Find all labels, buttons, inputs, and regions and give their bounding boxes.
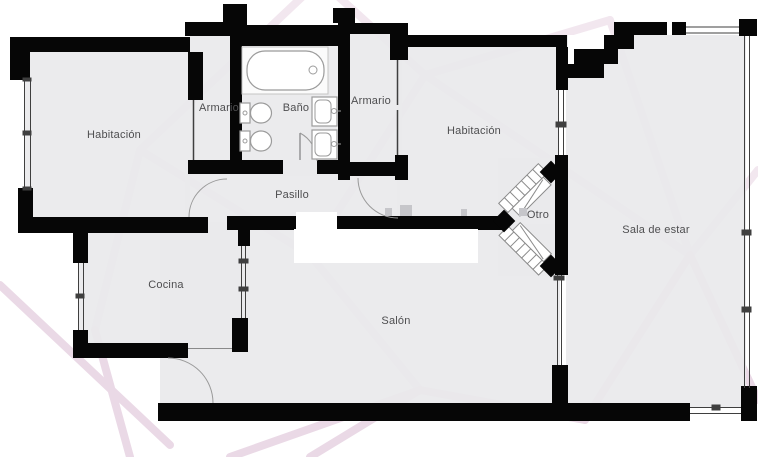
room-label-bano: Baño — [283, 102, 310, 114]
room-label-armario-2: Armario — [351, 95, 391, 107]
room-label-habitacion-1: Habitación — [87, 129, 141, 141]
room-label-sala-de-estar: Sala de estar — [622, 224, 689, 236]
room-label-pasillo: Pasillo — [275, 189, 309, 201]
room-label-habitacion-2: Habitación — [447, 125, 501, 137]
sink-icon — [312, 130, 341, 159]
room-label-otro: Otro — [527, 209, 549, 221]
bathtub-icon — [242, 47, 328, 94]
toilet-icon — [240, 103, 272, 123]
floor-plan: Habitación Armario Baño Armario Habitaci… — [0, 0, 758, 457]
floor-sala-de-estar — [566, 35, 746, 407]
window-sala-top — [686, 27, 739, 33]
room-label-armario-1: Armario — [199, 102, 239, 114]
toilet-icon — [240, 131, 272, 151]
room-label-salon: Salón — [381, 315, 410, 327]
room-label-cocina: Cocina — [148, 279, 183, 291]
sink-icon — [312, 97, 341, 126]
